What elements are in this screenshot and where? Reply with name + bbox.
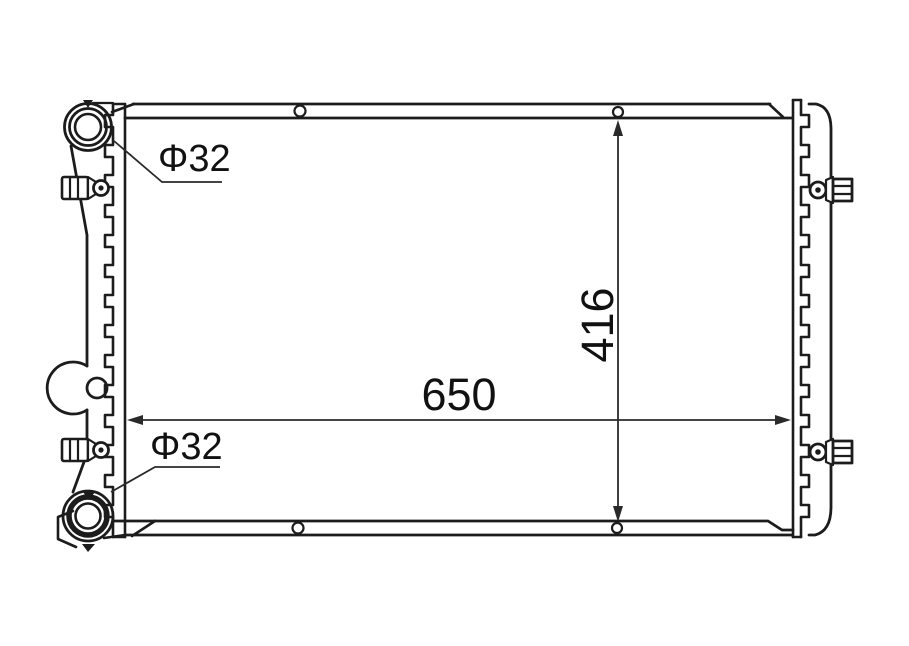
top-port bbox=[65, 100, 114, 151]
bottom-flange-hole-left bbox=[293, 523, 304, 534]
right-pin-upper bbox=[810, 177, 852, 203]
bottom-port-callout: Φ32 bbox=[111, 426, 223, 492]
left-side-plate bbox=[105, 104, 125, 537]
height-dimension-label: 416 bbox=[572, 287, 623, 362]
height-arrow-top bbox=[613, 120, 623, 136]
right-pin-lower-body bbox=[833, 441, 852, 463]
top-port-bore bbox=[75, 114, 101, 140]
width-dimension: 650 bbox=[127, 369, 791, 425]
right-tank-outline bbox=[809, 104, 831, 535]
right-pin-upper-fastener-dot bbox=[815, 187, 821, 193]
right-pin-lower bbox=[810, 439, 852, 465]
top-flange-crimp-right bbox=[769, 104, 783, 117]
bottom-port-bore bbox=[76, 504, 101, 529]
top-port-label: Φ32 bbox=[158, 138, 231, 180]
top-flange-hole-left bbox=[295, 106, 306, 117]
drawing-canvas: 650 416 Φ32 Φ32 bbox=[0, 0, 909, 646]
top-port-callout: Φ32 bbox=[114, 138, 231, 182]
left-pin-lower-body bbox=[62, 439, 88, 461]
left-body-lower-edge bbox=[73, 462, 84, 492]
right-pin-lower-fastener-dot bbox=[815, 449, 821, 455]
bottom-flange-inner-line bbox=[113, 521, 793, 530]
left-pin-upper bbox=[62, 177, 109, 199]
width-arrow-right bbox=[775, 415, 791, 425]
core-top-flange bbox=[112, 104, 792, 118]
left-plate-serrated-edge bbox=[105, 104, 113, 537]
left-pin-lower bbox=[62, 439, 109, 461]
width-dimension-label: 650 bbox=[421, 369, 496, 420]
height-dimension: 416 bbox=[572, 120, 623, 522]
right-pin-upper-body bbox=[833, 179, 852, 201]
width-arrow-left bbox=[127, 415, 143, 425]
bottom-flange-hole-right bbox=[612, 523, 622, 533]
mounting-lug-arc bbox=[47, 362, 87, 414]
right-side-bracket bbox=[793, 100, 831, 537]
radiator-technical-drawing: 650 416 Φ32 Φ32 bbox=[0, 0, 909, 646]
core-bottom-flange bbox=[113, 521, 793, 536]
right-bracket-serrated-edge bbox=[801, 100, 809, 537]
bottom-port-label: Φ32 bbox=[150, 426, 223, 468]
top-flange-hole-right bbox=[613, 107, 623, 117]
left-pin-upper-fastener-dot bbox=[98, 185, 103, 190]
bottom-port-leader-line bbox=[111, 467, 220, 492]
bottom-port-bottom-tab bbox=[82, 544, 95, 552]
left-pin-lower-fastener-dot bbox=[98, 447, 103, 452]
left-pin-upper-body bbox=[62, 177, 88, 199]
